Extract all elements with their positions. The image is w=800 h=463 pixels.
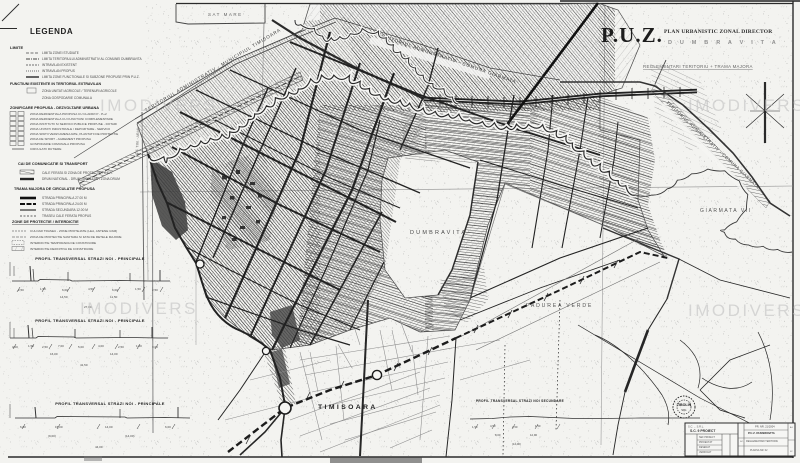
svg-text:2,50: 2,50 xyxy=(118,345,124,349)
svg-text:PROFIL TRANSVERSAL STRAZI NOI: PROFIL TRANSVERSAL STRAZI NOI - PRINCIPA… xyxy=(35,318,145,323)
svg-text:LIMITE: LIMITE xyxy=(10,45,23,50)
svg-text:STRADA PRINCIPALA 24.00 M: STRADA PRINCIPALA 24.00 M xyxy=(42,202,87,206)
svg-text:ZONE DE PROTECTIE / INTERDICTI: ZONE DE PROTECTIE / INTERDICTIE xyxy=(12,220,79,224)
svg-text:S.C. 9 PROIECT: S.C. 9 PROIECT xyxy=(690,429,716,433)
svg-text:DESENAT: DESENAT xyxy=(699,446,711,449)
svg-text:TIMISOARA: TIMISOARA xyxy=(318,404,378,411)
svg-text:IMODIVERS: IMODIVERS xyxy=(80,299,198,318)
svg-text:LIMITA ZONE FUNCTIONALE SI SUB: LIMITA ZONE FUNCTIONALE SI SUBZONE PROPU… xyxy=(42,75,140,79)
svg-text:INTERDICTIE DEFINITIVA DE CONS: INTERDICTIE DEFINITIVA DE CONSTRUIRE xyxy=(30,247,93,251)
svg-text:FUNCTIUNI EXISTENTE IN TERITOR: FUNCTIUNI EXISTENTE IN TERITORIUL EXTRAV… xyxy=(10,82,101,86)
svg-text:STRADA PRINCIPALA 27.00 M: STRADA PRINCIPALA 27.00 M xyxy=(42,196,87,200)
svg-text:(14,00): (14,00) xyxy=(125,434,135,438)
svg-text:ZONA SPATII VERZI AMENAJATE, P: ZONA SPATII VERZI AMENAJATE, PLANTATII D… xyxy=(30,132,118,136)
svg-text:PROFIL TRANSVERSAL STRAZI NOI: PROFIL TRANSVERSAL STRAZI NOI - PRINCIPA… xyxy=(35,256,145,261)
svg-text:15,00: 15,00 xyxy=(55,425,63,429)
svg-text:REGLEMENTARI TERITORIU: REGLEMENTARI TERITORIU xyxy=(746,440,778,443)
svg-text:6,00: 6,00 xyxy=(62,288,68,292)
svg-text:1,50: 1,50 xyxy=(472,425,478,429)
svg-text:REGLEMENTARI TERITORIU + TR: REGLEMENTARI TERITORIU + TRAMA MAJORA xyxy=(643,64,753,69)
svg-text:14,00: 14,00 xyxy=(110,352,118,356)
svg-text:D U M B R A V I T A: D U M B R A V I T A xyxy=(668,40,779,46)
svg-text:VERIFICAT: VERIFICAT xyxy=(699,451,712,454)
svg-text:2,50: 2,50 xyxy=(42,345,48,349)
svg-text:CAI DE COMUNICATIE SI TRANSPOR: CAI DE COMUNICATIE SI TRANSPORT xyxy=(18,162,88,166)
svg-text:PLAN URBANISTIC ZONAL DIREC: PLAN URBANISTIC ZONAL DIRECTOR xyxy=(664,29,773,35)
svg-text:2,50: 2,50 xyxy=(18,288,24,292)
svg-text:INTERDICTIE TEMPORARA DE CONST: INTERDICTIE TEMPORARA DE CONSTRUIRE xyxy=(30,241,96,245)
svg-text:DRUM NATIONAL - DRUM JUDETEAN: DRUM NATIONAL - DRUM JUDETEAN / ZONA DRU… xyxy=(42,177,120,181)
svg-text:ZONA DE PROTECTIE SANITARA SI: ZONA DE PROTECTIE SANITARA SI FATA DE RE… xyxy=(30,235,122,239)
svg-text:TRASEU CALE FERATA PROPUS: TRASEU CALE FERATA PROPUS xyxy=(42,214,91,218)
svg-text:41,50: 41,50 xyxy=(80,363,88,367)
svg-text:ZONA UNITATI AGRICOLE / TERENU: ZONA UNITATI AGRICOLE / TERENURI AGRICOL… xyxy=(42,89,117,93)
svg-text:ZONA INSTITUTII SI SERVICII PU: ZONA INSTITUTII SI SERVICII PUBLICE PROP… xyxy=(30,122,117,126)
svg-text:(12,00): (12,00) xyxy=(512,442,521,446)
svg-text:14,00: 14,00 xyxy=(105,425,113,429)
svg-text:IMODIVERS: IMODIVERS xyxy=(688,96,800,115)
svg-text:SRL: SRL xyxy=(681,408,687,412)
svg-text:PROIECTAT: PROIECTAT xyxy=(699,441,713,444)
svg-text:6,00: 6,00 xyxy=(20,425,26,429)
svg-text:6,00: 6,00 xyxy=(112,288,118,292)
svg-text:IMODIVERS: IMODIVERS xyxy=(688,301,800,320)
svg-text:8,00: 8,00 xyxy=(495,433,501,437)
svg-text:5,00: 5,00 xyxy=(78,345,84,349)
svg-text:2,50: 2,50 xyxy=(152,288,158,292)
svg-text:PLANSA NR. 02: PLANSA NR. 02 xyxy=(750,449,768,452)
svg-text:1,50: 1,50 xyxy=(135,287,141,291)
svg-text:CULOAR TRASEU - ZONE PROTEJATE: CULOAR TRASEU - ZONE PROTEJATE (LEA, ANT… xyxy=(30,229,117,233)
svg-text:ZONA REZIDENTIALA PROPUSA CU C: ZONA REZIDENTIALA PROPUSA CU CLADIRI P -… xyxy=(30,112,107,116)
svg-text:14,50: 14,50 xyxy=(60,295,68,299)
svg-text:1,50: 1,50 xyxy=(40,287,46,291)
svg-text:ZONA REZIDENTIALA CU FUNCTIUNI: ZONA REZIDENTIALA CU FUNCTIUNI COMPLEMEN… xyxy=(30,117,113,121)
svg-text:INTRAVILAN EXISTENT: INTRAVILAN EXISTENT xyxy=(42,63,77,67)
svg-text:12,00: 12,00 xyxy=(530,433,537,437)
svg-text:7,00: 7,00 xyxy=(58,344,64,348)
svg-text:ZONA DE SPORT - AGREMENT PROPU: ZONA DE SPORT - AGREMENT PROPUSA xyxy=(30,137,92,141)
svg-text:TRAMA MAJORA DE CIRCULATIE PR: TRAMA MAJORA DE CIRCULATIE PROPUSA xyxy=(14,187,95,191)
svg-text:1,50: 1,50 xyxy=(136,344,142,348)
svg-text:PROFIL TRANSVERSAL STRAZI NOI: PROFIL TRANSVERSAL STRAZI NOI - PRINCIPA… xyxy=(55,401,165,406)
svg-text:3,00: 3,00 xyxy=(152,345,158,349)
svg-text:INTRAVILAN PROPUS: INTRAVILAN PROPUS xyxy=(42,69,75,73)
svg-text:PROFIL TRANSVERSAL STRAZI NOI: PROFIL TRANSVERSAL STRAZI NOI SECUNDARE xyxy=(476,399,564,403)
svg-text:STRADA SECUNDARA 12.00 M: STRADA SECUNDARA 12.00 M xyxy=(42,208,88,212)
svg-text:GIARMATA VII: GIARMATA VII xyxy=(700,208,752,214)
svg-text:4,50: 4,50 xyxy=(490,424,496,428)
svg-text:PR. NR. 21/2004: PR. NR. 21/2004 xyxy=(755,425,775,429)
svg-text:3,00: 3,00 xyxy=(12,345,18,349)
svg-text:ZONA UNITATI INDUSTRIALE / DEP: ZONA UNITATI INDUSTRIALE / DEPOZITARE - … xyxy=(30,127,110,131)
svg-text:GOSPODARIE COMUNALA PROPUSA: GOSPODARIE COMUNALA PROPUSA xyxy=(30,142,86,146)
svg-text:1,50: 1,50 xyxy=(535,424,541,428)
svg-text:16,00: 16,00 xyxy=(50,352,58,356)
svg-text:IMODIVERS: IMODIVERS xyxy=(100,96,218,115)
svg-text:DUMBRAVITA: DUMBRAVITA xyxy=(410,230,467,236)
svg-text:LEGENDA: LEGENDA xyxy=(30,27,73,36)
svg-text:6,00: 6,00 xyxy=(165,425,171,429)
svg-text:P.U.Z.: P.U.Z. xyxy=(601,23,663,47)
svg-text:ZONA GOSPODARIE COMUNALA: ZONA GOSPODARIE COMUNALA xyxy=(42,96,93,100)
svg-text:SC.: SC. xyxy=(740,441,744,443)
svg-text:1,50: 1,50 xyxy=(28,344,34,348)
svg-text:P.U.Z. DUMBRAVITA: P.U.Z. DUMBRAVITA xyxy=(748,431,775,435)
svg-text:TIBOLIN: TIBOLIN xyxy=(677,403,692,407)
svg-text:CIRCULATII RUTIERE: CIRCULATII RUTIERE xyxy=(30,147,61,151)
svg-text:CALE FERATA SI ZONA DE PROTECT: CALE FERATA SI ZONA DE PROTECTIE - C.F.R… xyxy=(42,171,113,175)
svg-text:(9,00): (9,00) xyxy=(48,434,56,438)
svg-text:LIMITA ZONEI STUDIATE: LIMITA ZONEI STUDIATE xyxy=(42,51,79,55)
svg-text:ZONIFICARE PROPUSA - DEZVOLTAR: ZONIFICARE PROPUSA - DEZVOLTARE URBANA xyxy=(10,106,99,110)
svg-text:LIMITA TERITORIULUI ADMINISTRA: LIMITA TERITORIULUI ADMINISTRATIV AL COM… xyxy=(42,57,142,61)
svg-text:PADUREA VERDE: PADUREA VERDE xyxy=(526,303,593,309)
svg-text:4,00: 4,00 xyxy=(98,344,104,348)
svg-text:4,50: 4,50 xyxy=(88,287,94,291)
svg-text:S.C. ... S.R.L.: S.C. ... S.R.L. xyxy=(688,425,704,429)
svg-text:44,00: 44,00 xyxy=(95,445,103,449)
svg-text:SEF PROIECT: SEF PROIECT xyxy=(699,436,715,439)
svg-text:4,50: 4,50 xyxy=(512,425,518,429)
